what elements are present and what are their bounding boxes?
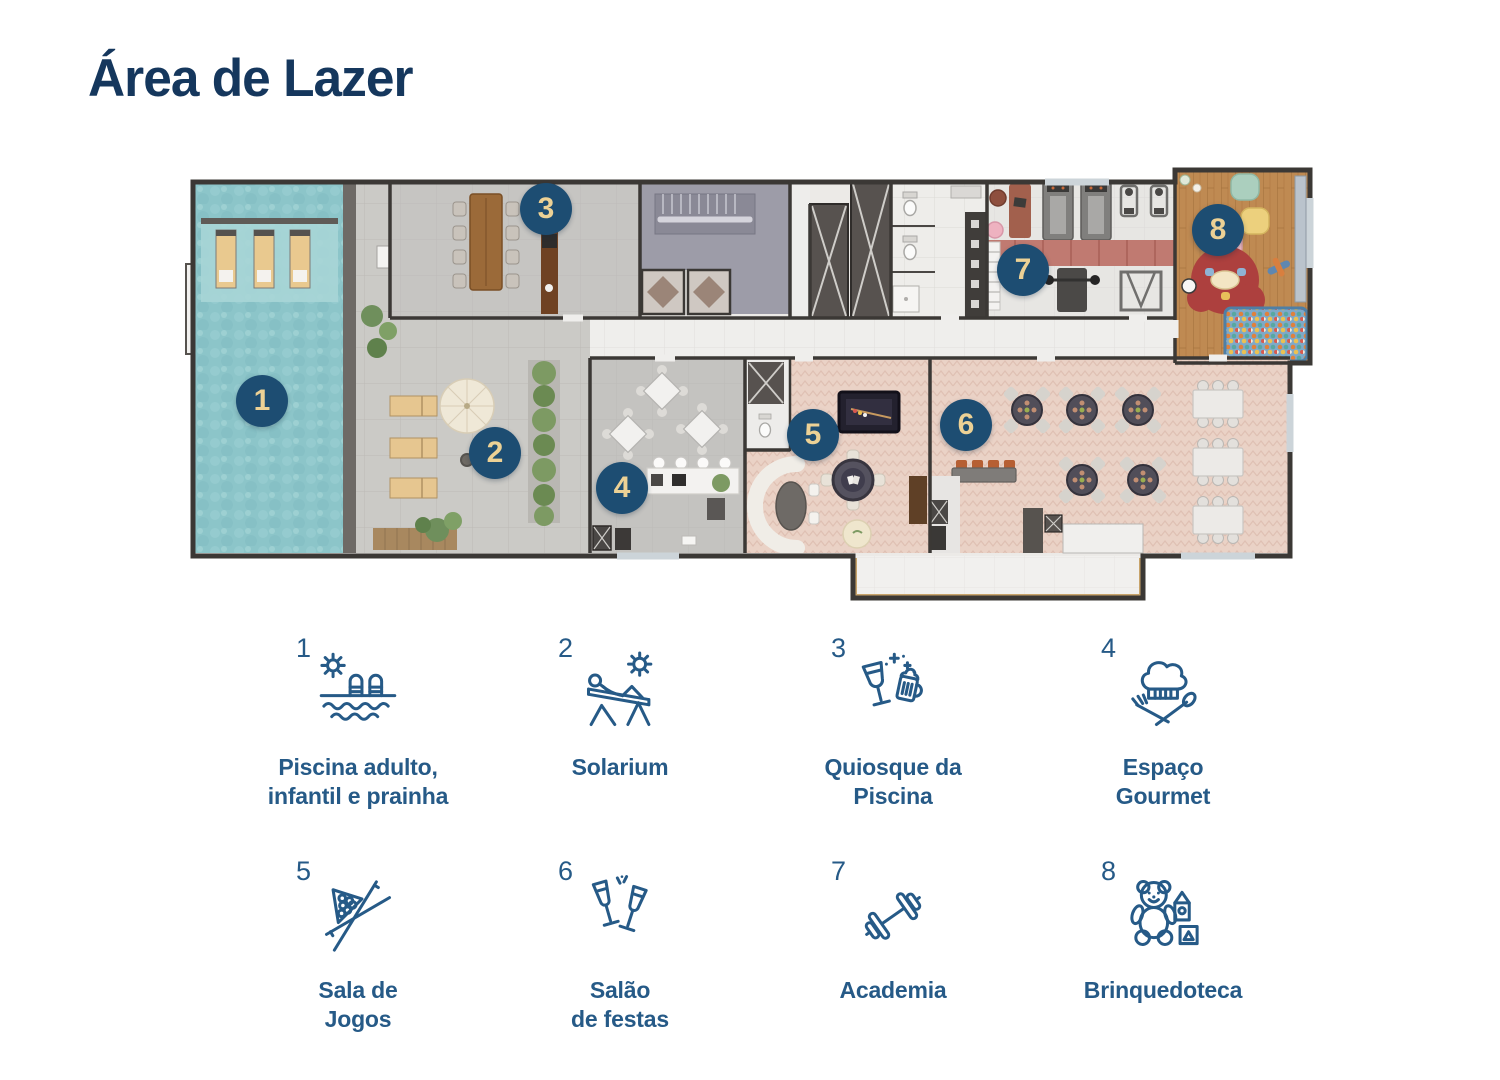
marker-number: 3 xyxy=(538,192,555,226)
pool-loungers xyxy=(216,230,310,288)
floor-plan: 1 2 3 4 5 6 7 8 xyxy=(185,168,1310,605)
game-room-icon xyxy=(316,874,400,958)
marker-number: 2 xyxy=(487,436,504,470)
playroom-icon xyxy=(1121,874,1205,958)
umbrella xyxy=(440,379,494,433)
marker-number: 5 xyxy=(805,418,822,452)
pouf xyxy=(1241,208,1269,234)
pool-icon xyxy=(316,651,400,735)
plan-marker-6: 6 xyxy=(940,399,992,451)
legend-number: 3 xyxy=(831,633,846,664)
plan-marker-3: 3 xyxy=(520,183,572,235)
gym-ball xyxy=(987,222,1003,238)
legend-label: Brinquedoteca xyxy=(1043,976,1283,1005)
pool-area xyxy=(193,182,356,553)
cabinet xyxy=(909,476,927,524)
plan-marker-1: 1 xyxy=(236,375,288,427)
plan-marker-4: 4 xyxy=(596,462,648,514)
banquet-tables xyxy=(1193,381,1243,544)
plan-marker-2: 2 xyxy=(469,427,521,479)
gourmet-icon xyxy=(1121,651,1205,735)
legend-label: Sala de Jogos xyxy=(238,976,478,1034)
legend-label: Piscina adulto, infantil e prainha xyxy=(238,753,478,811)
legend-item-academia: 7 Academia xyxy=(773,856,1013,1066)
legend-label: Salão de festas xyxy=(500,976,740,1034)
legend-item-quiosque: 3 Qui xyxy=(773,633,1013,843)
marker-number: 4 xyxy=(614,471,631,505)
legend-label: Espaço Gourmet xyxy=(1043,753,1283,811)
billiards-table xyxy=(839,392,899,432)
terrace xyxy=(853,556,1143,598)
legend-number: 8 xyxy=(1101,856,1116,887)
tree xyxy=(361,305,383,327)
legend-label: Quiosque da Piscina xyxy=(773,753,1013,811)
legend-number: 6 xyxy=(558,856,573,887)
legend-item-gourmet: 4 Espaço Gourmet xyxy=(1043,633,1283,843)
party-hall-icon xyxy=(578,874,662,958)
pool-kiosk-icon xyxy=(851,651,935,735)
marker-number: 7 xyxy=(1015,253,1032,287)
playroom xyxy=(1175,170,1310,363)
page-title: Área de Lazer xyxy=(88,48,413,109)
floor-plan-graphic xyxy=(185,168,1310,605)
games-room xyxy=(745,358,930,553)
legend-label: Solarium xyxy=(500,753,740,782)
deck-loungers xyxy=(390,396,437,498)
legend-item-festas: 6 Salão de festas xyxy=(500,856,740,1066)
legend-label: Academia xyxy=(773,976,1013,1005)
plan-marker-8: 8 xyxy=(1192,204,1244,256)
gourmet-room xyxy=(590,358,745,553)
legend-number: 5 xyxy=(296,856,311,887)
legend-item-brinquedoteca: 8 Brinqu xyxy=(1043,856,1283,1066)
gym-icon xyxy=(851,874,935,958)
legend-item-solarium: 2 Solarium xyxy=(500,633,740,843)
ball-pit xyxy=(1225,308,1307,361)
legend-number: 2 xyxy=(558,633,573,664)
kiosk-room xyxy=(390,182,640,318)
marker-number: 1 xyxy=(254,384,271,418)
utility-nib xyxy=(745,358,790,450)
legend-item-piscina: 1 Piscina adulto, infantil e prainha xyxy=(238,633,478,843)
plan-marker-5: 5 xyxy=(787,409,839,461)
plan-marker-7: 7 xyxy=(997,244,1049,296)
solarium-icon xyxy=(578,651,662,735)
legend-item-jogos: 5 Sala de Jogos xyxy=(238,856,478,1066)
legend-number: 7 xyxy=(831,856,846,887)
legend-number: 1 xyxy=(296,633,311,664)
pouf xyxy=(1231,174,1259,200)
party-hall xyxy=(930,358,1290,553)
marker-number: 8 xyxy=(1210,213,1227,247)
page: Área de Lazer xyxy=(0,0,1500,1080)
legend-number: 4 xyxy=(1101,633,1116,664)
marker-number: 6 xyxy=(958,408,975,442)
